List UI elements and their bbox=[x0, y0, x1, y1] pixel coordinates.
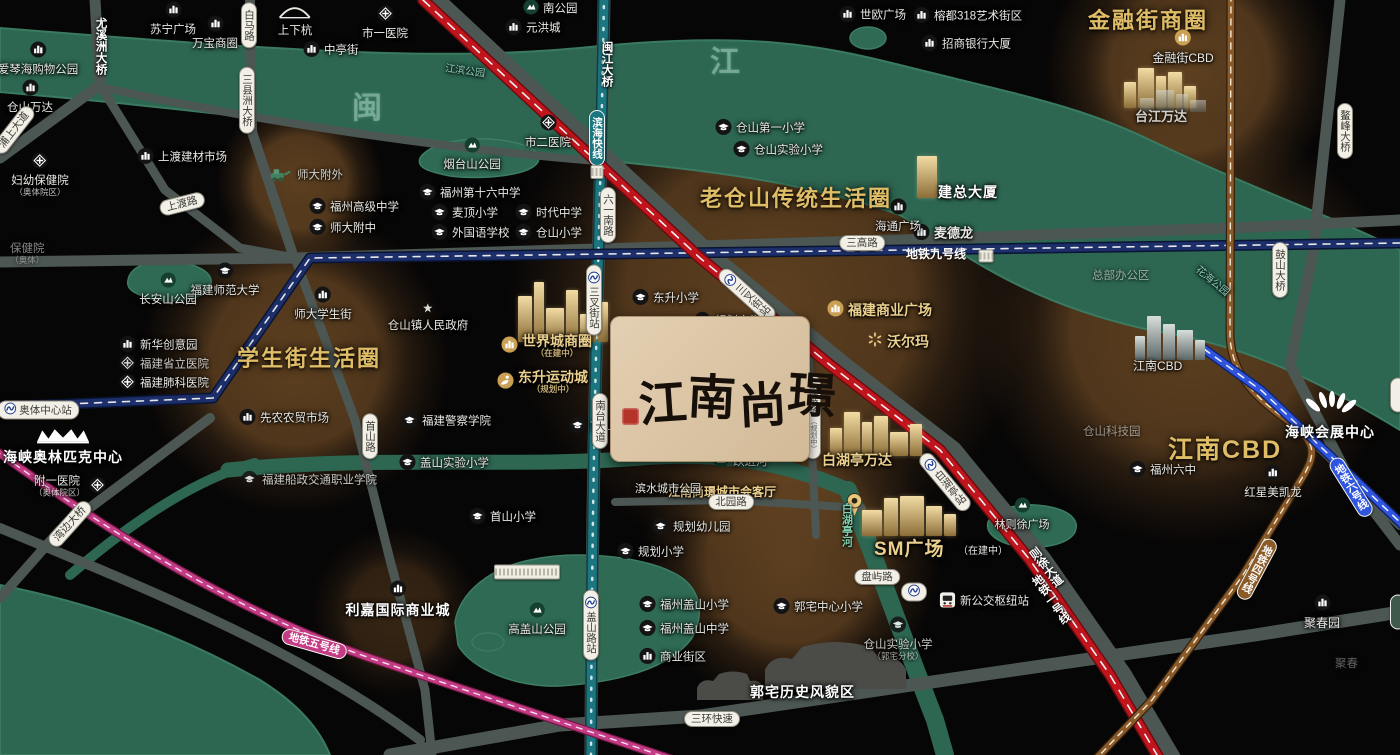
sports-icon bbox=[497, 372, 514, 392]
poi-bridge: 上下杭 bbox=[278, 5, 313, 38]
olympic-crown-icon bbox=[35, 427, 91, 447]
badge-label: 闽江大桥 bbox=[599, 41, 612, 87]
poi-label: 福州第十六中学 bbox=[440, 187, 521, 200]
poi-label: 林则徐广场 bbox=[995, 519, 1050, 532]
poi-gold: 金融街CBD bbox=[1152, 29, 1213, 66]
poi-fan: 海峡会展中心 bbox=[1285, 391, 1375, 440]
poi-label: 滨水城市公园 bbox=[635, 483, 701, 496]
poi-med: 市二医院 bbox=[525, 114, 571, 150]
poi-label: 仓山科技园 bbox=[1083, 426, 1141, 439]
poi-label: 总部办公区 bbox=[1092, 270, 1150, 283]
poi-label: 台江万达 bbox=[1135, 110, 1187, 125]
poi-label: 江滨公园 bbox=[444, 63, 485, 80]
poi-label: 市一医院 bbox=[362, 28, 408, 41]
road-badge: 北园路 bbox=[708, 494, 754, 510]
road-badge: 六一南路 bbox=[600, 187, 616, 243]
poi-sch: 福州高级中学 bbox=[309, 197, 399, 218]
badge-label: 三环快速 bbox=[691, 713, 733, 725]
poi-label: 首山小学 bbox=[490, 511, 536, 524]
road-bridge-label: 尤溪洲大桥 bbox=[92, 11, 107, 81]
poi-sport: 东升运动城（规划中） bbox=[497, 369, 588, 395]
building-icon bbox=[639, 647, 656, 668]
badge-label: 地铁五号线 bbox=[287, 631, 341, 657]
school-icon bbox=[515, 203, 532, 224]
poi-label: 规划小学 bbox=[638, 546, 684, 559]
badge-label bbox=[1392, 385, 1400, 406]
illegible-badge bbox=[979, 250, 994, 263]
poi-label: 聚春 bbox=[1335, 658, 1358, 671]
school-icon bbox=[639, 595, 656, 616]
poi-sch: 盖山实验小学 bbox=[399, 453, 489, 474]
poi-label: 聚春 bbox=[1335, 658, 1358, 671]
school-icon bbox=[569, 416, 586, 437]
poi-bus: 新公交枢纽站 bbox=[939, 591, 1029, 612]
poi-label: 江 bbox=[710, 46, 740, 81]
metro-roundel-icon bbox=[908, 584, 920, 596]
poi-label: 白湖亭万达 bbox=[822, 452, 892, 468]
poi-sch: 仓山第一小学 bbox=[715, 118, 805, 139]
school-icon bbox=[401, 411, 418, 432]
poi-label: 学生街生活圈 bbox=[237, 346, 381, 371]
illegible-badge bbox=[591, 165, 604, 179]
poi-med: 附一医院（奥体院区） bbox=[34, 476, 106, 499]
badge-label: 首山路 bbox=[364, 420, 376, 452]
poi-label: 福州盖山中学 bbox=[660, 623, 729, 636]
road-badge: 鳌峰大桥 bbox=[1337, 103, 1353, 159]
poi-sch: 麦顶小学 bbox=[431, 203, 498, 224]
poi-sch: 时代中学 bbox=[515, 203, 582, 224]
hospital-icon bbox=[89, 476, 106, 497]
poi-biz: 商业街区 bbox=[639, 647, 706, 668]
poi-sch: 规划幼儿园 bbox=[652, 517, 731, 538]
park-icon bbox=[464, 137, 480, 157]
school-icon bbox=[652, 517, 669, 538]
walmart-spark-icon bbox=[867, 331, 883, 350]
poi-label: 郭宅历史风貌区 bbox=[750, 684, 855, 700]
badge-label: 盖山路站 bbox=[585, 612, 597, 654]
badge-label bbox=[1392, 602, 1400, 623]
school-icon bbox=[431, 223, 448, 244]
project-name-char: 璟 bbox=[786, 354, 839, 427]
poi-label: 市二医院 bbox=[525, 137, 571, 150]
poi-label: 海峡会展中心 bbox=[1285, 424, 1375, 440]
poi-label: 福州盖山小学 bbox=[660, 599, 729, 612]
badge-label: 三叉街站 bbox=[588, 287, 600, 329]
building-icon bbox=[390, 580, 407, 600]
poi-biz: 上渡建材市场 bbox=[137, 147, 227, 168]
school-icon bbox=[773, 597, 790, 618]
poi-label: 白湖亭万达 bbox=[822, 452, 892, 468]
poi-label: 爱琴海购物公园 bbox=[0, 64, 78, 77]
poi-label: 滨水城市公园 bbox=[635, 483, 701, 496]
road-badge: 浦上大道 bbox=[0, 103, 38, 157]
park-icon bbox=[1014, 497, 1030, 517]
school-icon bbox=[632, 288, 649, 309]
road-bridge-label: 白湖亭河 bbox=[839, 497, 854, 553]
poi-label: 中亭街 bbox=[324, 44, 359, 57]
gold-roundel-icon bbox=[1175, 29, 1192, 50]
poi-med: 福建肺科医院 bbox=[119, 373, 209, 394]
school-icon bbox=[617, 542, 634, 563]
poi-label: 江 bbox=[710, 46, 740, 81]
poi-label: 长安山公园 bbox=[139, 294, 197, 307]
poi-biz: 麦德龙 bbox=[913, 224, 973, 245]
poi-label: 外国语学校 bbox=[452, 227, 510, 240]
badge-label: 北园路 bbox=[715, 496, 747, 508]
poi-crown: 海峡奥林匹克中心 bbox=[3, 427, 123, 465]
poi-label: 福建省立医院 bbox=[140, 358, 209, 371]
poi-label: 福建警察学院 bbox=[422, 415, 491, 428]
poi-label: 郭宅中心小学 bbox=[794, 601, 863, 614]
building-cluster bbox=[1135, 316, 1205, 360]
building-icon bbox=[913, 6, 930, 27]
school-icon bbox=[733, 140, 750, 161]
badge-label: 地铁四号线 bbox=[1239, 543, 1274, 595]
poi-label: 师大学生街 bbox=[294, 309, 352, 322]
poi-label: 红星美凯龙 bbox=[1244, 487, 1302, 500]
poi-sch: 福建警察学院 bbox=[401, 411, 491, 432]
park-icon bbox=[523, 0, 539, 19]
metro-roundel-icon bbox=[585, 597, 597, 609]
poi-biz: 招商银行大厦 bbox=[921, 34, 1011, 55]
poi-med: 市一医院 bbox=[362, 5, 408, 41]
poi-label: 盖山实验小学 bbox=[420, 457, 489, 470]
poi-label: 花海公园 bbox=[1193, 264, 1231, 299]
poi-label: 商业街区 bbox=[660, 651, 706, 664]
metro-line-badge: 滨海快线 bbox=[589, 110, 605, 166]
poi-label: 台江万达 bbox=[1135, 110, 1187, 125]
building-icon bbox=[22, 79, 39, 100]
poi-label: 妇幼保健院（奥体院区） bbox=[11, 175, 69, 198]
metro-roundel-icon bbox=[4, 402, 16, 414]
badge-label: 六一南路 bbox=[602, 194, 614, 236]
poi-label: 麦顶小学 bbox=[452, 207, 498, 220]
poi-tractor: 师大附外 bbox=[269, 165, 343, 186]
poi-label: 福建船政交通职业学院 bbox=[262, 474, 377, 487]
poi-sch: 东升小学 bbox=[632, 288, 699, 309]
poi-label: 总部办公区 bbox=[1092, 270, 1150, 283]
metro-station-badge: 盖山路站 bbox=[583, 590, 599, 661]
building-cluster bbox=[862, 496, 956, 536]
road-bridge-label: 地铁九号线 bbox=[900, 247, 972, 263]
poi-label: 规划幼儿园 bbox=[673, 521, 731, 534]
school-icon bbox=[515, 223, 532, 244]
road-badge: 盘屿路 bbox=[854, 569, 900, 585]
poi-wal: 沃尔玛 bbox=[867, 331, 929, 350]
building-icon bbox=[239, 408, 256, 429]
poi-label: 上渡建材市场 bbox=[158, 151, 227, 164]
poi-park: 南公园 bbox=[523, 0, 578, 19]
convention-fan-icon bbox=[1303, 391, 1357, 422]
poi-label: 保健院（奥体） bbox=[10, 243, 45, 266]
project-logo-card: 江南尚璟 bbox=[610, 316, 810, 462]
poi-label: 榕都318艺术街区 bbox=[934, 10, 1022, 23]
poi-sch: 仓山实验小学 bbox=[733, 140, 823, 161]
poi-label: SM广场 bbox=[874, 539, 945, 561]
road-badge: 白马路 bbox=[241, 2, 257, 48]
park-icon bbox=[529, 602, 545, 622]
park-icon bbox=[160, 272, 176, 292]
poi-sch: 福建船政交通职业学院 bbox=[241, 470, 377, 491]
poi-sch: 规划小学 bbox=[617, 542, 684, 563]
poi-label: 万宝商圈 bbox=[192, 38, 238, 51]
road-badge: 三高路 bbox=[839, 235, 885, 251]
poi-biz: 师大学生街 bbox=[294, 286, 352, 322]
poi-label: 仓山第一小学 bbox=[736, 122, 805, 135]
road-badge: 首山路 bbox=[362, 413, 378, 459]
poi-label: 江南CBD bbox=[1168, 436, 1282, 465]
poi-label: 江南CBD bbox=[1133, 360, 1182, 374]
poi-biz: 苏宁广场 bbox=[150, 1, 196, 37]
poi-biz: 聚春园 bbox=[1304, 594, 1340, 631]
poi-label: SM广场 bbox=[874, 539, 945, 561]
metro-line-badge bbox=[1390, 595, 1400, 630]
school-icon bbox=[715, 118, 732, 139]
metro-line-badge: 地铁五号线 bbox=[280, 627, 348, 661]
hospital-icon bbox=[32, 152, 49, 173]
poi-label: 招商银行大厦 bbox=[942, 38, 1011, 51]
poi-sch: 外国语学校 bbox=[431, 223, 510, 244]
poi-label: 花海公园 bbox=[1193, 264, 1231, 299]
metro-roundel-icon bbox=[588, 272, 600, 284]
poi-label: 烟台山公园 bbox=[443, 159, 501, 172]
poi-label: 附一医院（奥体院区） bbox=[34, 476, 85, 499]
poi-label: 时代中学 bbox=[536, 207, 582, 220]
badge-label: 浦上大道 bbox=[0, 110, 32, 151]
gold-roundel-icon bbox=[501, 336, 518, 356]
building-icon bbox=[1265, 464, 1282, 485]
building-icon bbox=[921, 34, 938, 55]
poi-label: 郭宅历史风貌区 bbox=[750, 684, 855, 700]
badge-label: 鼓山大桥 bbox=[1274, 249, 1286, 291]
poi-label: 世欧广场 bbox=[860, 9, 906, 22]
poi-label: 利嘉国际商业城 bbox=[346, 602, 451, 618]
building-cluster bbox=[917, 156, 937, 198]
badge-label: 湾边大桥 bbox=[51, 504, 88, 543]
project-name-char: 尚 bbox=[737, 365, 789, 437]
poi-biz: 先农农贸市场 bbox=[239, 408, 329, 429]
school-icon bbox=[469, 507, 486, 528]
poi-label: 沃尔玛 bbox=[887, 333, 929, 349]
school-icon bbox=[241, 470, 258, 491]
poi-biz: 红星美凯龙 bbox=[1244, 464, 1302, 500]
road-badge: 湾边大桥 bbox=[45, 498, 94, 550]
school-icon bbox=[639, 619, 656, 640]
school-icon bbox=[399, 453, 416, 474]
building-icon bbox=[137, 147, 154, 168]
poi-label: 江滨公园 bbox=[444, 63, 485, 80]
badge-label: 上渡路 bbox=[165, 194, 198, 213]
excavator-icon bbox=[269, 165, 293, 186]
poi-label: 南公园 bbox=[543, 2, 578, 15]
metro-roundel-icon bbox=[585, 597, 597, 609]
poi-biz: 榕都318艺术街区 bbox=[913, 6, 1022, 27]
bridge-icon bbox=[279, 5, 311, 23]
project-name-char: 江 bbox=[636, 362, 689, 435]
school-icon bbox=[890, 616, 907, 637]
school-icon bbox=[419, 183, 436, 204]
poi-biz: 爱琴海购物公园 bbox=[0, 41, 78, 77]
illegible-badge bbox=[494, 565, 560, 580]
badge-label: 鳌峰大桥 bbox=[1339, 110, 1351, 152]
badge-label: 尤溪洲大桥 bbox=[93, 17, 106, 75]
poi-label: 东升小学 bbox=[653, 292, 699, 305]
poi-label: 福建师范大学 bbox=[191, 285, 260, 298]
poi-label: 金融街CBD bbox=[1152, 52, 1213, 66]
poi-label: 建总大厦 bbox=[938, 184, 998, 200]
project-name-char: 南 bbox=[686, 357, 738, 429]
red-seal-icon bbox=[622, 408, 639, 425]
poi-label: （在建中） bbox=[958, 546, 1008, 558]
badge-label: 奥体中心站 bbox=[19, 404, 72, 416]
poi-park: 高盖山公园 bbox=[508, 602, 566, 637]
poi-sch: 仓山小学 bbox=[515, 223, 582, 244]
poi-sch: 师大附中 bbox=[309, 218, 376, 239]
school-icon bbox=[309, 197, 326, 218]
school-icon bbox=[431, 203, 448, 224]
poi-label: 世界城商圈（在建中） bbox=[522, 333, 592, 359]
map-canvas: 爱琴海购物公园苏宁广场万宝商圈上下杭中亭街仓山万达上渡建材市场妇幼保健院（奥体院… bbox=[0, 0, 1400, 755]
building-icon bbox=[303, 40, 320, 61]
poi-label: 老仓山传统生活圈 bbox=[700, 186, 892, 211]
poi-label: 上下杭 bbox=[278, 25, 313, 38]
poi-label: 聚春园 bbox=[1304, 617, 1340, 631]
poi-label: 先农农贸市场 bbox=[260, 412, 329, 425]
poi-biz: 元洪城 bbox=[505, 18, 561, 39]
gold-roundel-icon bbox=[827, 300, 844, 320]
poi-biz: 利嘉国际商业城 bbox=[346, 580, 451, 618]
metro-line-badge: 地铁四号线 bbox=[1234, 536, 1279, 602]
poi-label: 仓山实验小学 bbox=[754, 144, 823, 157]
hospital-icon bbox=[377, 5, 394, 26]
poi-label: （在建中） bbox=[958, 546, 1008, 558]
road-badge: 上渡路 bbox=[158, 191, 206, 218]
poi-sch: 福州盖山小学 bbox=[639, 595, 729, 616]
poi-label: 老仓山传统生活圈 bbox=[700, 186, 892, 211]
poi-label: 师大附中 bbox=[330, 222, 376, 235]
school-icon bbox=[309, 218, 326, 239]
poi-park: 烟台山公园 bbox=[443, 137, 501, 172]
badge-label: 滨海快线 bbox=[591, 117, 603, 159]
poi-biz: 中亭街 bbox=[303, 40, 359, 61]
poi-label: 高盖山公园 bbox=[508, 624, 566, 637]
poi-label: 福建肺科医院 bbox=[140, 377, 209, 390]
poi-label: 闽 bbox=[352, 92, 382, 127]
bus-hub-icon bbox=[939, 591, 956, 612]
poi-label: 仓山实验小学（郭宅分校） bbox=[864, 639, 933, 662]
poi-sch: 福建师范大学 bbox=[191, 262, 260, 298]
project-name: 江南尚璟 bbox=[638, 358, 836, 428]
road-badge: 三环快速 bbox=[684, 711, 740, 727]
poi-label: 苏宁广场 bbox=[150, 24, 196, 37]
poi-label: 福州高级中学 bbox=[330, 201, 399, 214]
poi-label: 江南CBD bbox=[1133, 360, 1182, 374]
road-badge bbox=[1390, 378, 1400, 413]
badge-label: 地铁九号线 bbox=[906, 248, 966, 262]
poi-label: 闽 bbox=[352, 92, 382, 127]
poi-sch: 仓山实验小学（郭宅分校） bbox=[864, 616, 933, 662]
poi-label: 江南CBD bbox=[1168, 436, 1282, 465]
building-icon bbox=[207, 15, 224, 36]
hospital-icon bbox=[540, 114, 557, 135]
building-cluster bbox=[830, 412, 922, 456]
poi-sch: 福州盖山中学 bbox=[639, 619, 729, 640]
poi-label: 海峡奥林匹克中心 bbox=[3, 449, 123, 465]
poi-gold: 福建商业广场 bbox=[827, 300, 932, 320]
metro-station-badge bbox=[901, 582, 927, 601]
building-icon bbox=[505, 18, 522, 39]
poi-sch: 郭宅中心小学 bbox=[773, 597, 863, 618]
poi-park: 林则徐广场 bbox=[995, 497, 1050, 531]
metro-station-badge: 三叉街站 bbox=[586, 265, 602, 336]
badge-label: 南台大道 bbox=[594, 400, 606, 442]
poi-label: 保健院（奥体） bbox=[10, 243, 45, 266]
building-icon bbox=[839, 5, 856, 26]
road-badge: 南台大道 bbox=[592, 393, 608, 449]
metro-roundel-icon bbox=[908, 584, 920, 599]
poi-star: 仓山镇人民政府 bbox=[388, 302, 469, 333]
poi-label: 海通广场 bbox=[875, 221, 921, 234]
badge-label: 白湖亭河 bbox=[840, 503, 853, 547]
metro-line-badge: 地铁六号线 bbox=[1327, 455, 1376, 520]
metro-roundel-icon bbox=[4, 402, 16, 417]
building-icon bbox=[1313, 594, 1330, 615]
building-icon bbox=[30, 41, 47, 62]
building-icon bbox=[315, 286, 332, 307]
poi-park: 长安山公园 bbox=[139, 272, 197, 307]
metro-station-badge: 奥体中心站 bbox=[0, 400, 79, 419]
government-star-icon bbox=[422, 302, 434, 318]
badge-label: 三县洲大桥 bbox=[241, 74, 253, 127]
poi-sch: 首山小学 bbox=[469, 507, 536, 528]
poi-biz: 世欧广场 bbox=[839, 5, 906, 26]
poi-label: 建总大厦 bbox=[938, 184, 998, 200]
poi-label: 新公交枢纽站 bbox=[960, 595, 1029, 608]
poi-label: 师大附外 bbox=[297, 169, 343, 182]
poi-label: 仓山科技园 bbox=[1083, 426, 1141, 439]
road-badge: 三县洲大桥 bbox=[239, 67, 255, 134]
badge-label: 地铁六号线 bbox=[1332, 462, 1370, 513]
poi-label: 仓山镇人民政府 bbox=[388, 320, 469, 333]
building-icon bbox=[890, 198, 907, 219]
road-badge: 鼓山大桥 bbox=[1272, 242, 1288, 298]
poi-label: 元洪城 bbox=[526, 22, 561, 35]
poi-label: 学生街生活圈 bbox=[237, 346, 381, 371]
school-icon bbox=[1129, 460, 1146, 481]
poi-biz: 万宝商圈 bbox=[192, 15, 238, 51]
badge-label: 三高路 bbox=[846, 237, 878, 249]
poi-label: 麦德龙 bbox=[934, 227, 973, 242]
school-icon bbox=[217, 262, 234, 283]
poi-label: 福州六中 bbox=[1150, 464, 1196, 477]
poi-sch: 福州第十六中学 bbox=[419, 183, 521, 204]
metro-roundel-icon bbox=[588, 272, 600, 284]
hospital-icon bbox=[119, 373, 136, 394]
poi-label: 仓山小学 bbox=[536, 227, 582, 240]
poi-med: 妇幼保健院（奥体院区） bbox=[11, 152, 69, 198]
poi-label: 新华创意园 bbox=[140, 339, 198, 352]
building-icon bbox=[165, 1, 182, 22]
badge-label: 白马路 bbox=[243, 9, 255, 41]
poi-label: 东升运动城（规划中） bbox=[518, 369, 588, 395]
badge-label: 盘屿路 bbox=[861, 571, 893, 583]
poi-label: 福建商业广场 bbox=[848, 302, 932, 318]
road-bridge-label: 闽江大桥 bbox=[598, 35, 613, 93]
poi-gold: 世界城商圈（在建中） bbox=[501, 333, 592, 359]
